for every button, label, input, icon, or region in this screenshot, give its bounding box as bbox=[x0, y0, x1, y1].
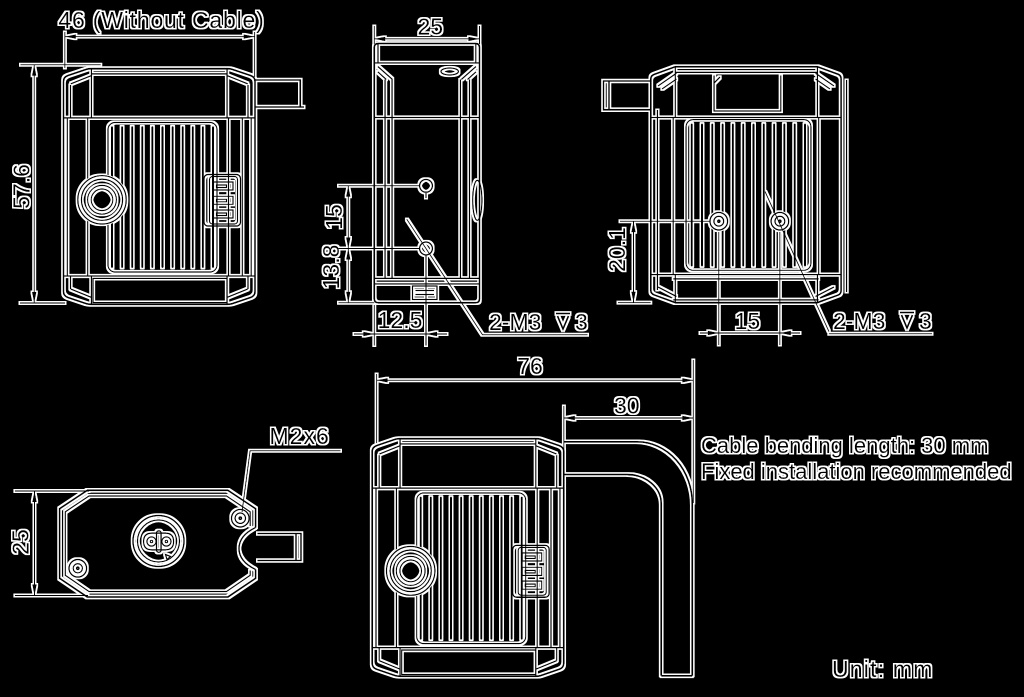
svg-text:Unit: mm: Unit: mm bbox=[832, 656, 934, 682]
svg-text:46 (Without Cable): 46 (Without Cable) bbox=[58, 7, 264, 33]
svg-text:25: 25 bbox=[418, 14, 444, 40]
svg-text:2-M3: 2-M3 bbox=[833, 308, 885, 334]
svg-text:Cable bending length: 30 mm: Cable bending length: 30 mm bbox=[701, 433, 988, 458]
svg-text:3: 3 bbox=[575, 309, 588, 335]
svg-text:15: 15 bbox=[321, 204, 347, 230]
svg-text:M2x6: M2x6 bbox=[270, 423, 330, 449]
svg-text:57.6: 57.6 bbox=[9, 164, 35, 209]
svg-text:25: 25 bbox=[8, 529, 34, 555]
svg-text:13.8: 13.8 bbox=[318, 245, 344, 290]
svg-text:30: 30 bbox=[614, 393, 640, 419]
svg-text:Fixed installation recommended: Fixed installation recommended bbox=[701, 459, 1012, 484]
svg-text:12.5: 12.5 bbox=[378, 307, 423, 333]
svg-text:15: 15 bbox=[735, 308, 761, 334]
svg-text:2-M3: 2-M3 bbox=[489, 309, 541, 335]
svg-text:3: 3 bbox=[919, 308, 932, 334]
svg-text:20.1: 20.1 bbox=[604, 227, 630, 272]
svg-text:76: 76 bbox=[517, 353, 543, 379]
